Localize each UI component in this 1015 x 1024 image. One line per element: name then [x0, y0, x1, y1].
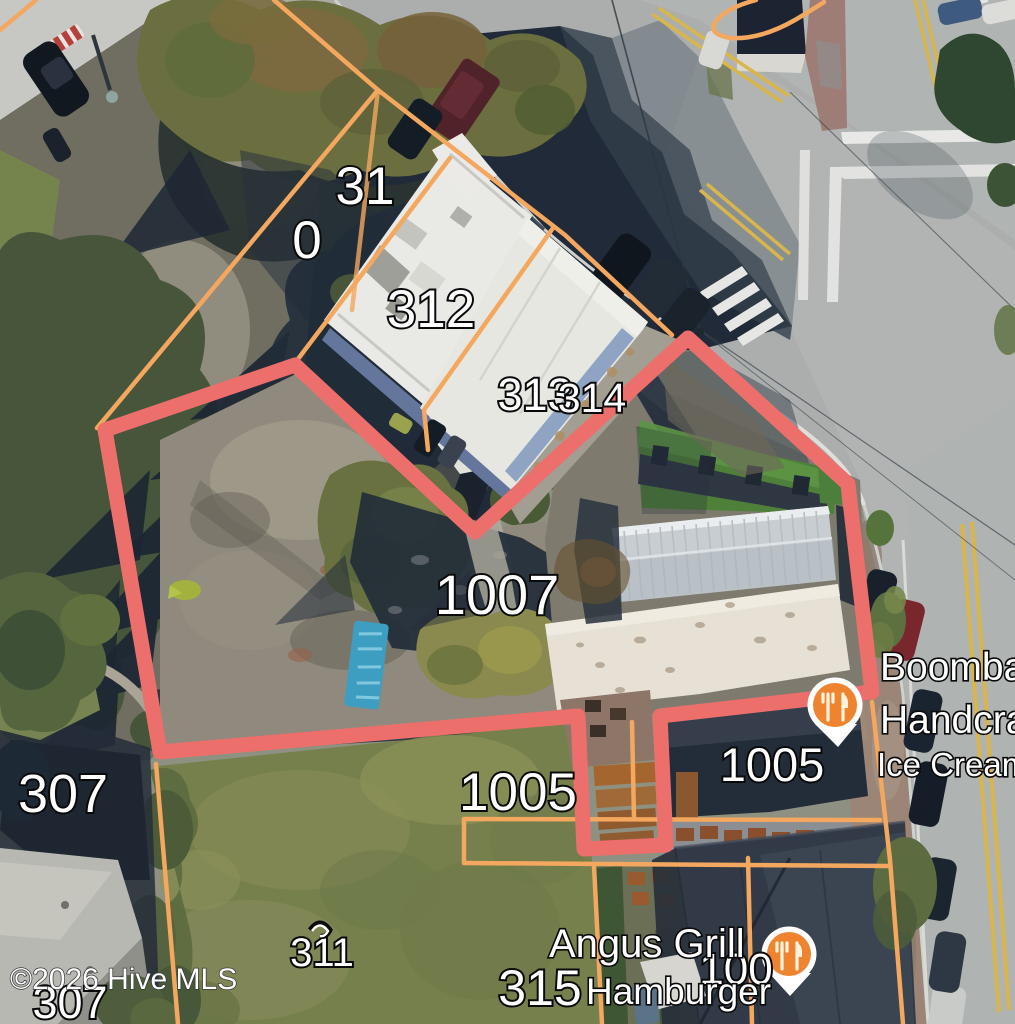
svg-text:©2026 Hive MLS: ©2026 Hive MLS [10, 963, 237, 996]
svg-text:315: 315 [498, 960, 581, 1016]
svg-text:1007: 1007 [435, 563, 560, 626]
svg-text:Angus Grill: Angus Grill [549, 922, 745, 966]
svg-text:Hamburger: Hamburger [586, 971, 771, 1012]
svg-text:Ice Cream: Ice Cream [877, 746, 1015, 783]
svg-text:31: 31 [336, 157, 395, 216]
svg-text:312: 312 [387, 280, 475, 339]
svg-text:1005: 1005 [459, 763, 577, 822]
svg-text:Boomba: Boomba [880, 646, 1015, 689]
svg-text:1005: 1005 [720, 738, 825, 791]
svg-text:307: 307 [18, 764, 108, 824]
svg-text:0: 0 [292, 211, 321, 270]
svg-text:Handcra: Handcra [880, 699, 1015, 742]
svg-text:314: 314 [558, 375, 626, 421]
